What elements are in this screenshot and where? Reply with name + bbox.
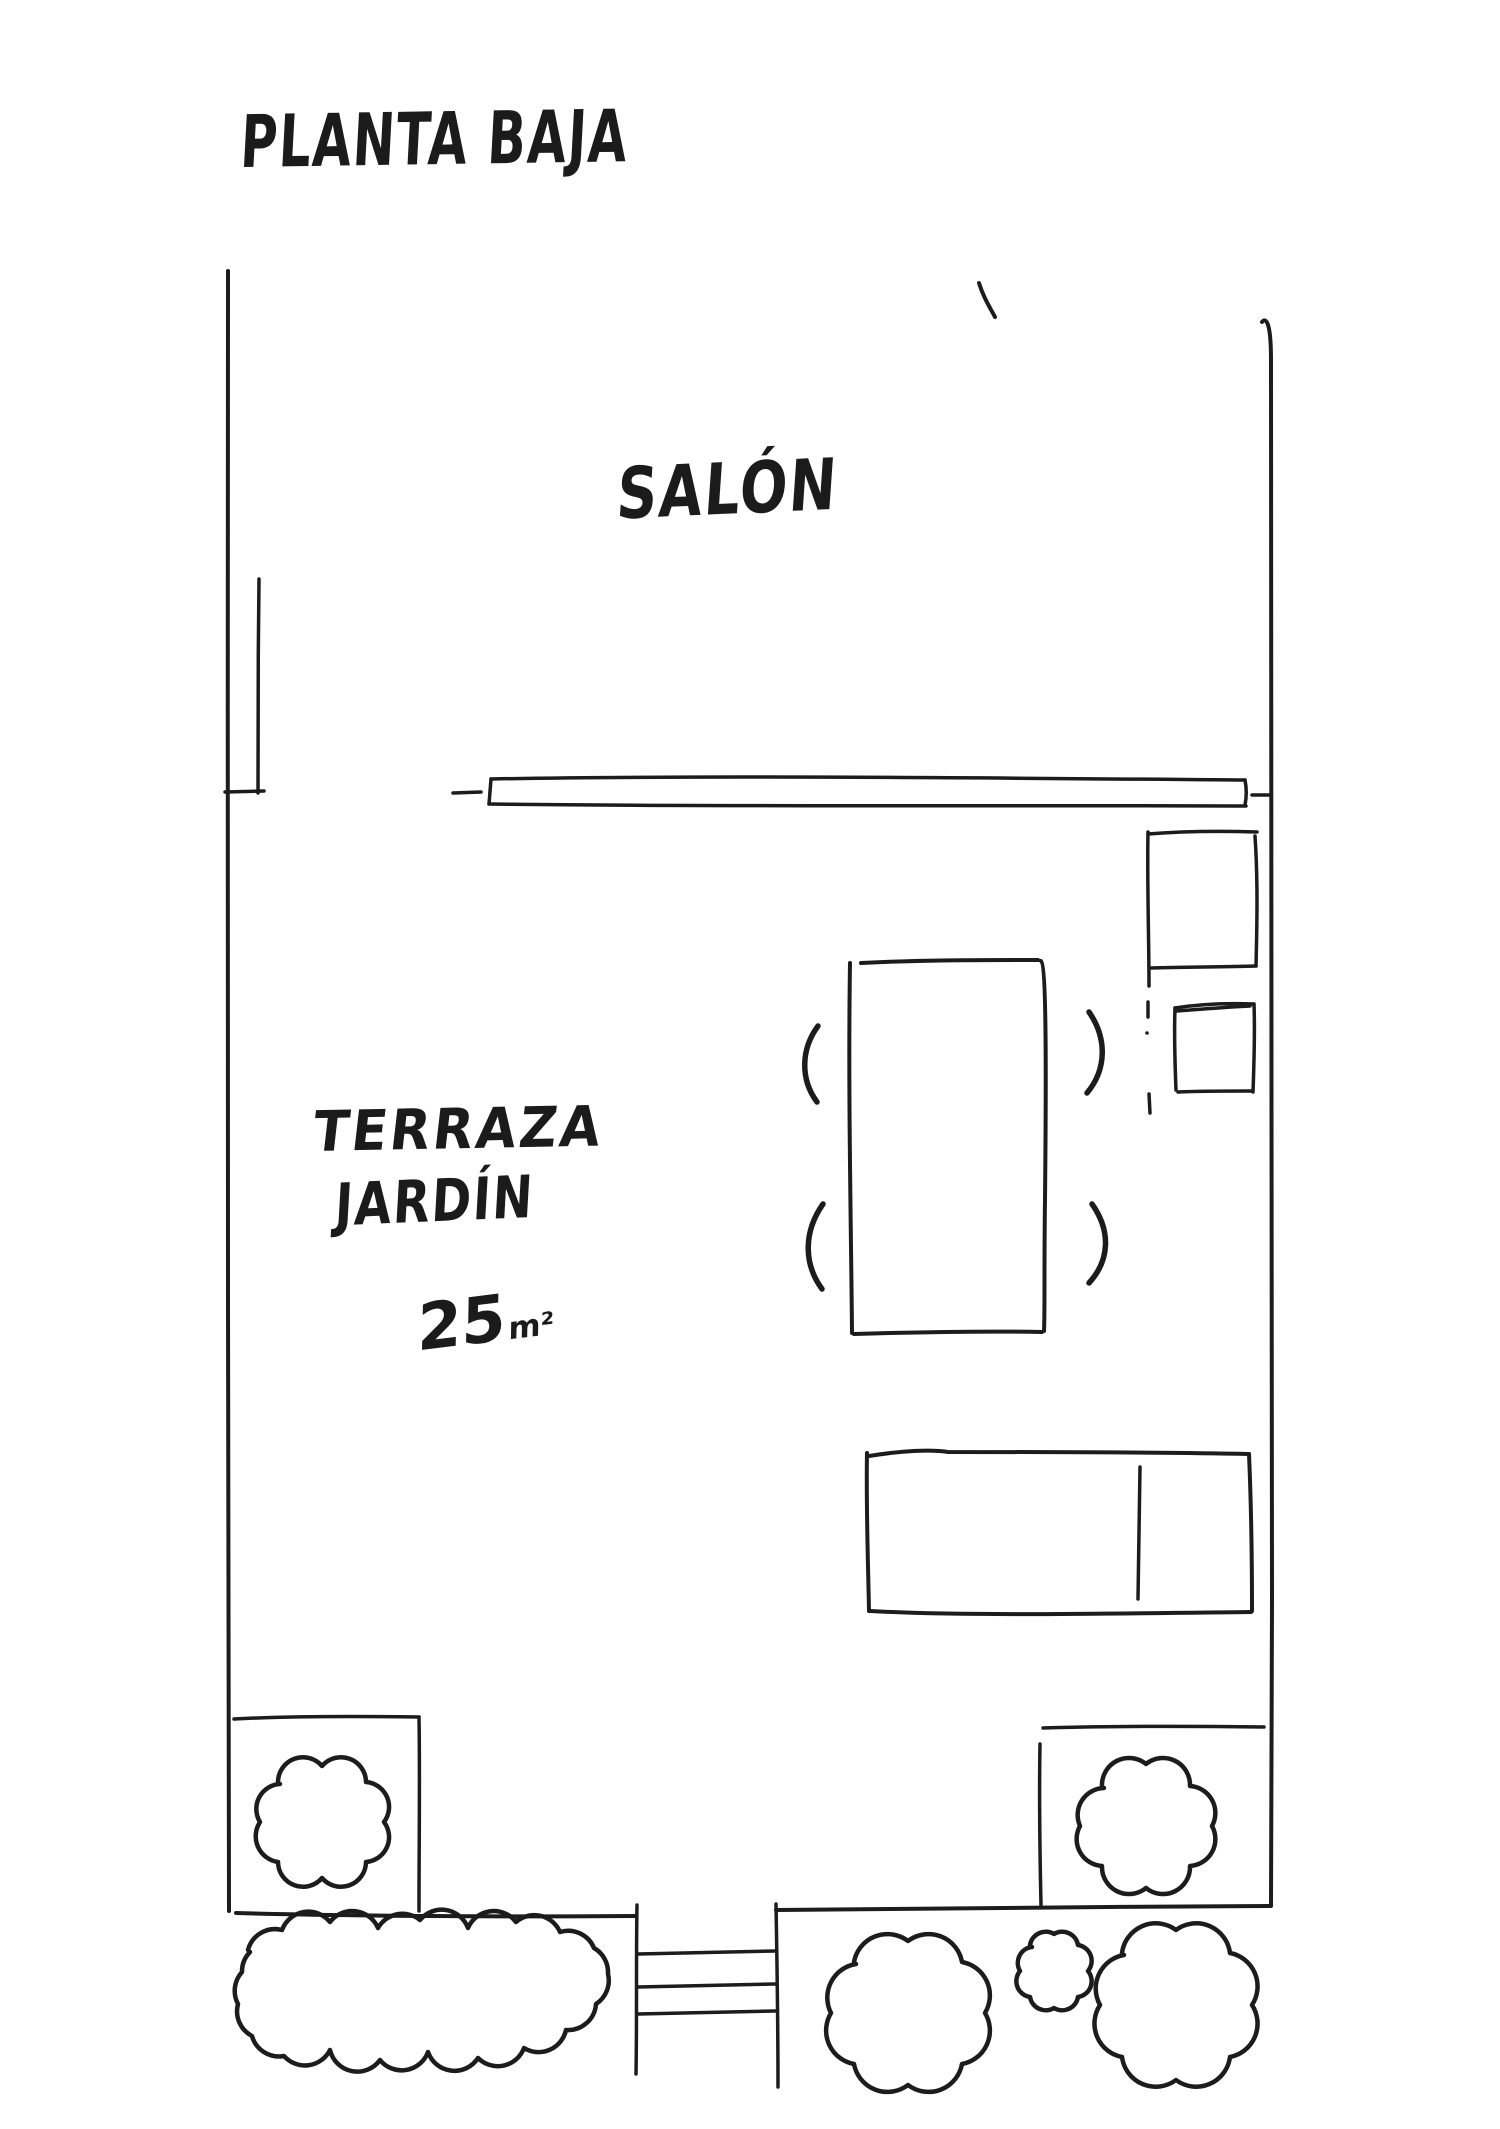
bush-garden-medium — [826, 1934, 990, 2092]
bench-right-edge — [1249, 1454, 1252, 1611]
bench-bottom-edge — [870, 1611, 1251, 1614]
storage-large-bottom — [1151, 966, 1256, 968]
storage-small-bottom — [1178, 1091, 1252, 1092]
bush-right-planter — [1077, 1758, 1216, 1894]
area-value: 25 — [417, 1281, 507, 1367]
chair-bottom-left — [808, 1204, 823, 1289]
storage-large-left — [1148, 832, 1149, 986]
interior-wall-stub-line — [258, 579, 259, 793]
area-unit: m² — [508, 1305, 554, 1347]
storage-small-left — [1175, 1008, 1176, 1090]
bushes — [235, 1757, 1258, 2092]
interior-wall-stub — [225, 579, 264, 793]
storage-large-top — [1148, 831, 1257, 834]
bush-hedge-long — [235, 1910, 609, 2072]
table-top-edge — [861, 960, 1038, 963]
dash-mark-dot — [1145, 1031, 1149, 1035]
step-line-2 — [638, 1984, 775, 1987]
storage-small-right — [1253, 1004, 1254, 1092]
window-top-edge — [491, 777, 1245, 780]
top-pen-stroke — [979, 283, 995, 317]
floor-plan-drawing — [0, 0, 1500, 2129]
sketch-page: PLANTA BAJA SALÓN TERRAZA JARDÍN 25m² — [0, 0, 1500, 2129]
planter-right-left-edge — [1040, 1744, 1041, 1905]
step-line-1 — [638, 1951, 775, 1954]
jardin-room-label: JARDÍN — [333, 1163, 536, 1240]
planter-right-top — [1043, 1726, 1264, 1728]
bench-left-edge — [867, 1453, 869, 1611]
plan-title: PLANTA BAJA — [238, 94, 630, 185]
storage-box-small — [1175, 1004, 1255, 1092]
chair-top-right — [1087, 1012, 1102, 1093]
storage-box-large — [1148, 831, 1257, 986]
sliding-glass-door — [453, 777, 1269, 806]
interior-wall-stub-tick — [225, 791, 264, 792]
bush-garden-small — [1016, 1932, 1091, 2011]
window-right-edge — [1245, 780, 1246, 805]
bench-divider — [1138, 1467, 1140, 1599]
garden-steps — [636, 1904, 778, 2087]
planter-box-right — [1040, 1726, 1264, 1905]
window-left-dash — [453, 792, 481, 793]
salon-room-label: SALÓN — [614, 442, 841, 536]
step-line-3 — [638, 2011, 775, 2014]
left-wall — [227, 271, 229, 1911]
window-left-edge — [489, 779, 491, 804]
storage-large-right — [1255, 836, 1257, 966]
bush-left-planter — [256, 1757, 389, 1887]
window-bottom-edge — [489, 804, 1246, 806]
chair-bottom-right — [1089, 1204, 1106, 1283]
planter-left-top — [234, 1716, 419, 1719]
table-left-edge — [849, 963, 852, 1333]
dining-table — [849, 960, 1045, 1334]
bush-garden-large — [1094, 1923, 1257, 2086]
steps-left-edge — [636, 1905, 637, 2074]
chair-top-left — [805, 1026, 818, 1102]
steps-right-edge — [776, 1904, 778, 2087]
table-right-edge — [1041, 961, 1046, 1331]
terraza-room-label: TERRAZA — [310, 1095, 607, 1165]
bottom-wall-right-segment — [776, 1906, 1270, 1910]
bench-top-edge — [869, 1451, 1249, 1456]
table-bottom-edge — [854, 1332, 1042, 1334]
right-wall — [1262, 320, 1272, 1906]
dashed-marks — [1145, 1002, 1150, 1113]
dash-mark-lower — [1149, 1094, 1150, 1113]
garden-bench — [867, 1451, 1252, 1615]
